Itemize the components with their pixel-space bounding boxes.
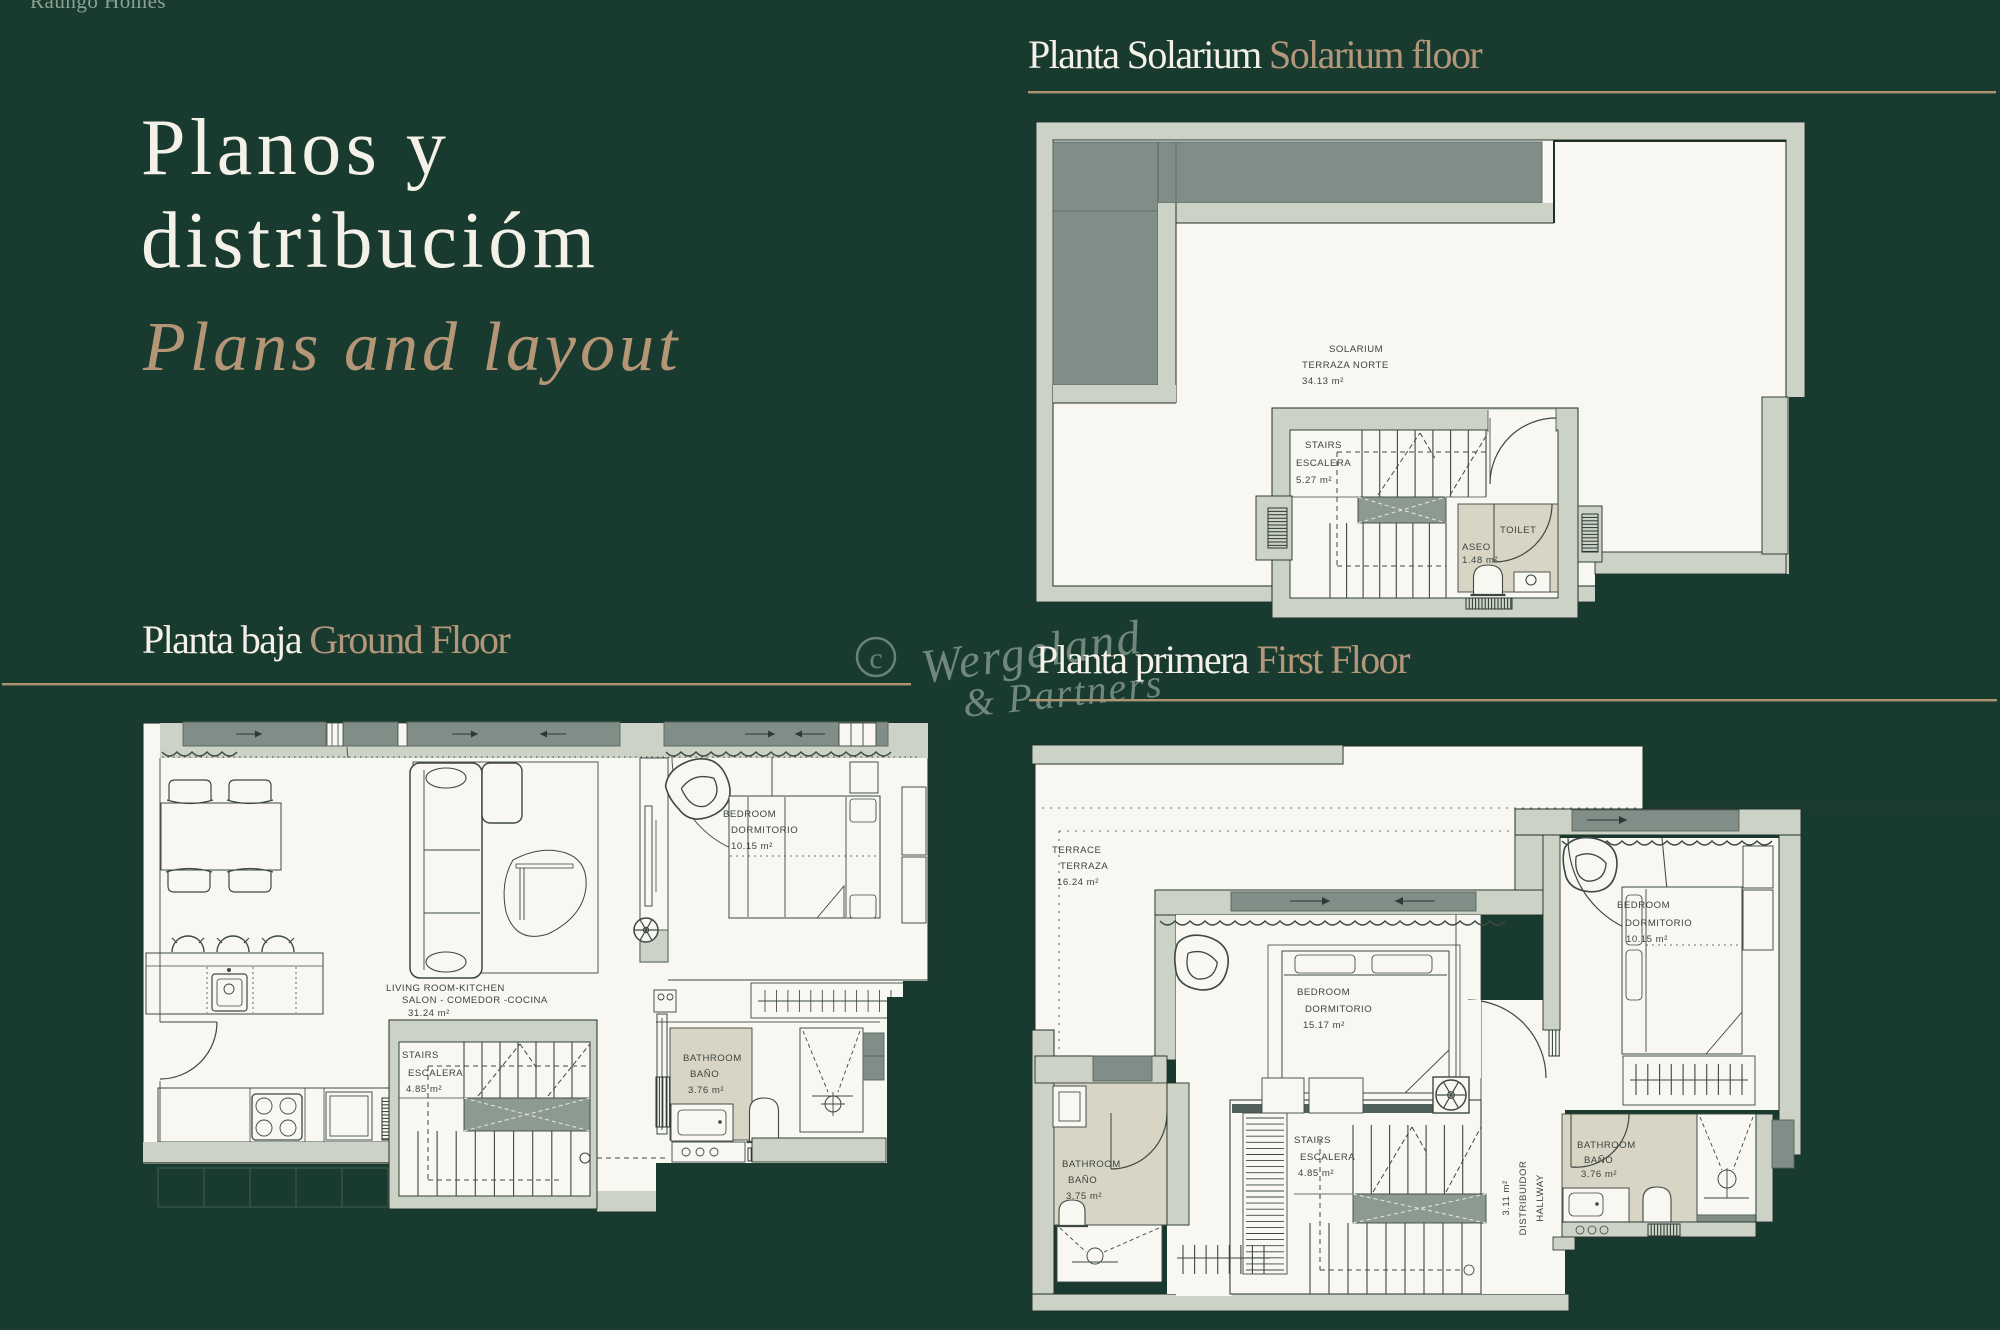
svg-text:Plans and layout: Plans and layout: [142, 309, 681, 386]
svg-text:c: c: [869, 642, 882, 675]
svg-text:TERRACE: TERRACE: [1052, 845, 1101, 856]
svg-text:ESCALERA: ESCALERA: [1296, 458, 1351, 469]
svg-text:DORMITORIO: DORMITORIO: [1625, 918, 1692, 929]
svg-text:ASEO: ASEO: [1462, 542, 1491, 553]
svg-text:SALON - COMEDOR -COCINA: SALON - COMEDOR -COCINA: [402, 995, 548, 1006]
svg-text:distribucióm: distribucióm: [141, 197, 599, 285]
svg-text:4.85 m²: 4.85 m²: [406, 1084, 442, 1095]
svg-text:16.24 m²: 16.24 m²: [1057, 877, 1099, 888]
svg-text:TERRAZA: TERRAZA: [1060, 861, 1108, 872]
svg-text:DISTRIBUIDOR: DISTRIBUIDOR: [1518, 1161, 1529, 1236]
svg-text:BEDROOM: BEDROOM: [1617, 900, 1670, 911]
svg-text:4.85 m²: 4.85 m²: [1298, 1168, 1334, 1179]
svg-text:STAIRS: STAIRS: [1305, 440, 1342, 451]
svg-text:Planta primera First Floor: Planta primera First Floor: [1036, 637, 1410, 682]
svg-text:BATHROOM: BATHROOM: [683, 1053, 742, 1064]
svg-text:LIVING ROOM-KITCHEN: LIVING ROOM-KITCHEN: [386, 983, 505, 994]
svg-text:10.15 m²: 10.15 m²: [1626, 934, 1668, 945]
svg-text:BATHROOM: BATHROOM: [1062, 1159, 1121, 1170]
svg-text:34.13 m²: 34.13 m²: [1302, 376, 1344, 387]
svg-text:3.76 m²: 3.76 m²: [1581, 1169, 1617, 1180]
svg-text:5.27 m²: 5.27 m²: [1296, 475, 1332, 486]
svg-text:31.24 m²: 31.24 m²: [408, 1008, 450, 1019]
svg-text:Planta baja Ground Floor: Planta baja Ground Floor: [142, 617, 510, 662]
svg-text:BEDROOM: BEDROOM: [723, 809, 776, 820]
svg-text:TOILET: TOILET: [1500, 525, 1536, 536]
svg-text:Raungo Homes: Raungo Homes: [30, 0, 166, 13]
svg-text:DORMITORIO: DORMITORIO: [1305, 1004, 1372, 1015]
svg-text:DORMITORIO: DORMITORIO: [731, 825, 798, 836]
svg-text:HALLWAY: HALLWAY: [1535, 1174, 1546, 1222]
svg-text:BATHROOM: BATHROOM: [1577, 1140, 1636, 1151]
svg-text:Planos y: Planos y: [141, 104, 450, 192]
svg-text:STAIRS: STAIRS: [1294, 1135, 1331, 1146]
svg-text:ESCALERA: ESCALERA: [408, 1068, 463, 1079]
svg-text:TERRAZA NORTE: TERRAZA NORTE: [1302, 360, 1389, 371]
svg-text:Planta Solarium Solarium floor: Planta Solarium Solarium floor: [1028, 32, 1482, 77]
svg-text:BAÑO: BAÑO: [1068, 1175, 1097, 1186]
svg-text:BAÑO: BAÑO: [1584, 1155, 1613, 1166]
svg-text:SOLARIUM: SOLARIUM: [1329, 344, 1383, 355]
svg-text:3.11 m²: 3.11 m²: [1501, 1180, 1512, 1216]
svg-text:3.76 m²: 3.76 m²: [688, 1085, 724, 1096]
svg-text:10.15 m²: 10.15 m²: [731, 841, 773, 852]
svg-text:15.17 m²: 15.17 m²: [1303, 1020, 1345, 1031]
svg-text:BAÑO: BAÑO: [690, 1069, 719, 1080]
svg-text:STAIRS: STAIRS: [402, 1050, 439, 1061]
svg-text:1.48 m²: 1.48 m²: [1462, 555, 1498, 566]
svg-text:BEDROOM: BEDROOM: [1297, 987, 1350, 998]
svg-text:ESCALERA: ESCALERA: [1300, 1152, 1355, 1163]
